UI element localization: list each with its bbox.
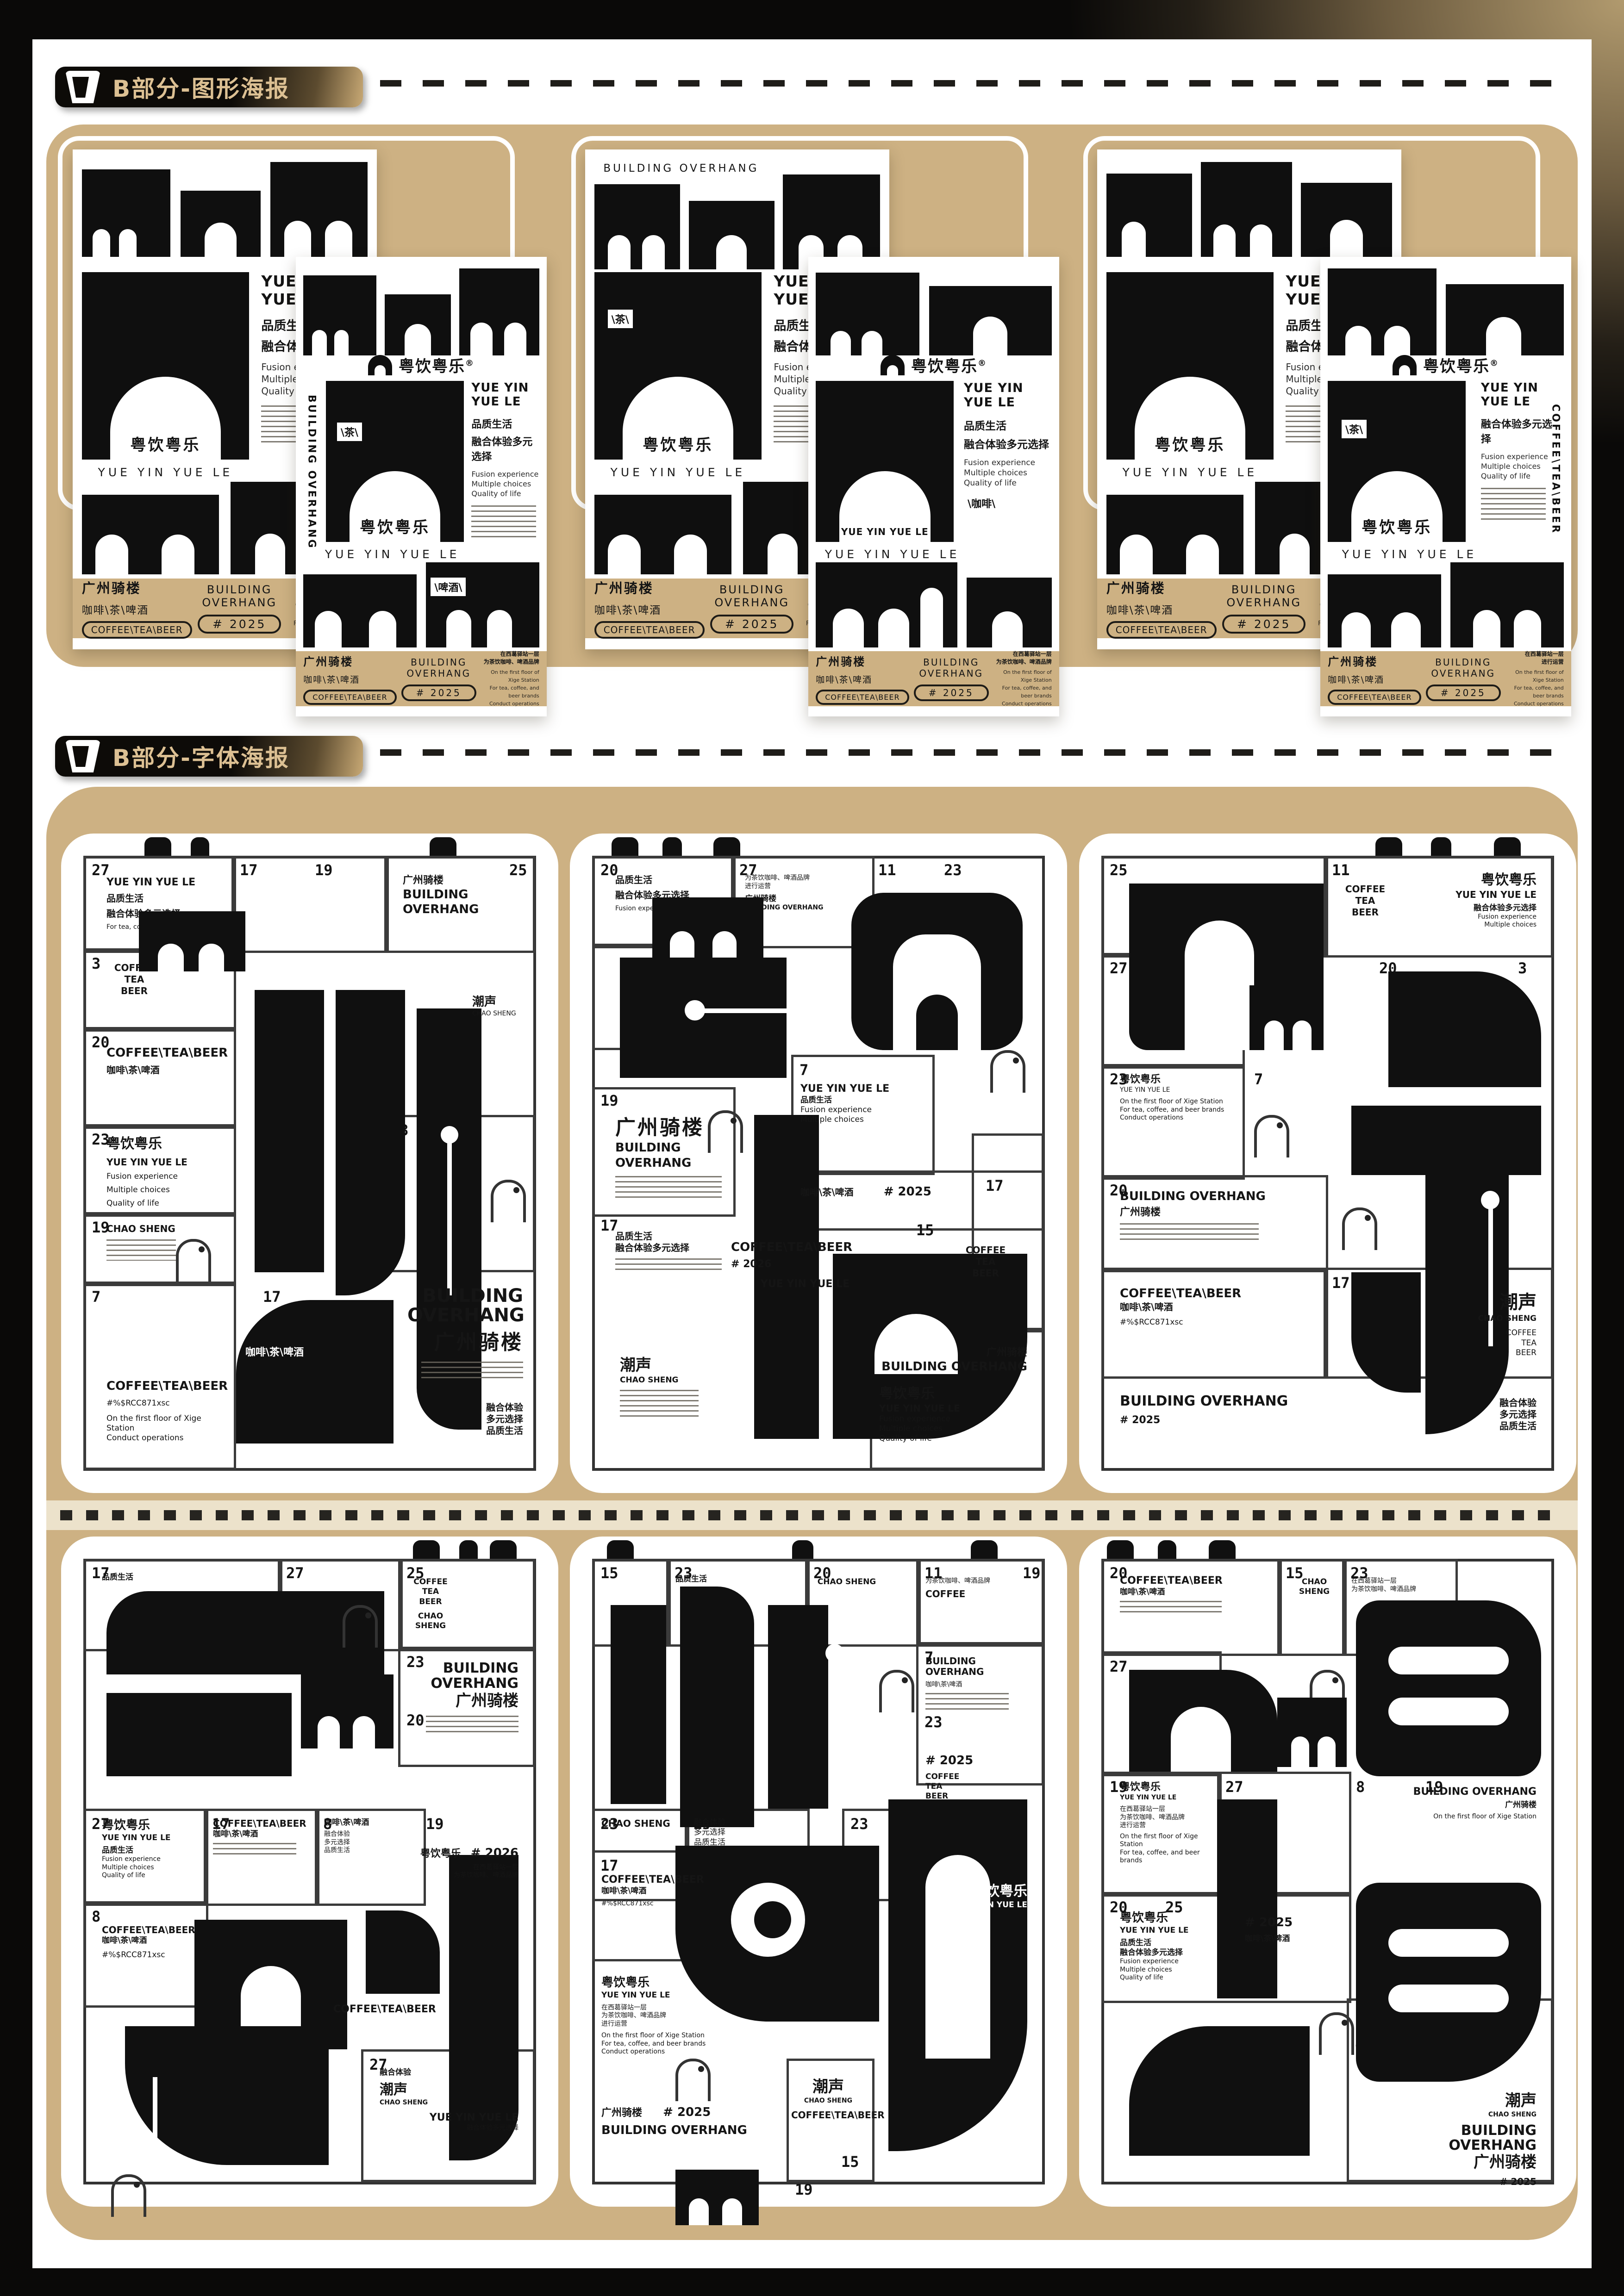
door-icon (879, 1670, 914, 1712)
building-large: 粤饮粤乐 (82, 272, 249, 460)
skyline (594, 174, 881, 269)
caption-en: YUE YIN YUE LE (597, 466, 758, 479)
arch-window (768, 534, 798, 574)
drinks-footer: COFFEE\TEA\BEER (1120, 2165, 1305, 2177)
grid-number: 27 (1110, 959, 1128, 977)
pin-dot (145, 2156, 163, 2173)
graphic-posters-panel: 粤饮粤乐 YUE YIN YUE LE 品质生活 融合体验多元选择 Fusion… (46, 124, 1578, 667)
roof-bump (662, 837, 682, 857)
door-dot (1013, 1058, 1019, 1064)
page-background: B部分-图形海报 粤饮粤乐 YUE YIN YUE LE (32, 39, 1592, 2268)
door-icon (343, 1605, 378, 1648)
arch-window (284, 221, 312, 257)
mini-building (675, 2170, 759, 2225)
coffee-stack: COFFEETEABEER (1333, 884, 1398, 918)
note-top: 为茶饮咖啡、啤酒品牌 COFFEE (925, 1577, 1032, 1600)
mini-building (652, 897, 763, 958)
arch-window (1291, 1736, 1309, 1767)
arch-window (504, 323, 527, 356)
typography-poster-3[interactable]: 25 11 27 25 20 3 23 7 20 17 (1079, 834, 1576, 1493)
arch-window (119, 229, 137, 257)
arch-window (255, 534, 285, 574)
building-block: BUILDING OVERHANG 广州骑楼 (407, 1661, 518, 1734)
arch-window (1384, 326, 1410, 355)
door-dot (1342, 2020, 1348, 2026)
building-bottom: 潮声 CHAO SHENG BUILDING OVERHANG 广州骑楼 # 2… (1402, 2091, 1537, 2188)
arch-window (205, 223, 237, 257)
glyph-stroke (236, 1300, 394, 1444)
arch-window (1213, 224, 1235, 257)
typography-poster-6[interactable]: 20 15 23 27 3 19 27 8 19 20 25 11 27 19 (1079, 1537, 1576, 2207)
footer-note: 在西葛驿站一层进行运营 On the first floor of Xige S… (1505, 650, 1564, 708)
brand-bottom: 粤饮粤乐 YUE YIN YUE LE 在西葛驿站一层为茶饮咖啡、啤酒品牌进行运… (601, 1975, 722, 2056)
building-overhang-big: BUILDING OVERHANG 广州骑楼 (407, 1286, 523, 1380)
chao-top: CHAO SHENG (1287, 1577, 1342, 1597)
year-mid: # 2025 COFFEETEABEER (925, 1753, 1032, 1801)
roof-bump (459, 1540, 478, 1560)
brand-block: 粤饮粤乐 YUE YIN YUE LE Fusion experienceMul… (106, 1135, 227, 1212)
skyline (1328, 562, 1564, 647)
brand-block: YUE YIN YUE LE 品质生活 Fusion experienceMul… (800, 1083, 921, 1125)
door-dot (365, 1612, 371, 1618)
glyph-stroke (1351, 1106, 1541, 1175)
grid-number: 7 (92, 1288, 100, 1306)
skyline (816, 268, 1052, 356)
tagline-zh1: 品质生活 (471, 416, 542, 431)
poster-grid: 27 17 19 25 3 20 23 19 7 17 23 (83, 856, 536, 1471)
roof-bump (430, 837, 456, 857)
brand-logo-row: 粤饮粤乐® (296, 354, 547, 376)
glyph-counter (1388, 1929, 1509, 1957)
door-dot (199, 1246, 205, 1252)
arch-doorway: 粤饮粤乐 (350, 471, 441, 542)
building-block: BUILDING OVERHANG 广州骑楼 (1120, 1189, 1314, 1240)
grid-number: 11 (878, 861, 896, 879)
section2-header-pill: B部分-字体海报 (55, 736, 363, 777)
tagline-zh2: 融合体验多元选择 (1481, 416, 1561, 446)
footer-left: 广州骑楼 咖啡\茶\啤酒 COFFEE\TEA\BEER (303, 653, 396, 705)
pin-stem (703, 1008, 805, 1013)
grid-number: 7 (800, 1061, 808, 1079)
brand-block: 粤饮粤乐 YUE YIN YUE LE 融合体验多元选择 Fusion expe… (1416, 871, 1537, 929)
place-block: 广州骑楼 BUILDING OVERHANG 粤饮粤乐 YUE YIN YUE … (879, 1346, 1027, 1444)
glyph-stroke (1129, 2026, 1310, 2156)
registered-mark: ® (1490, 358, 1499, 368)
roof-bump (1375, 837, 1402, 857)
arch-window (992, 611, 1023, 647)
footer-middle: BUILDING OVERHANG # 2025 (1426, 657, 1501, 701)
footer-note: 在西葛驿站一层为茶饮咖啡、啤酒品牌 On the first floor of … (481, 650, 539, 708)
fusion-block: 融合体验多元选择品质生活 (694, 1818, 796, 1848)
year-mid: # 2025 咖啡\茶\啤酒 (1245, 1915, 1337, 1944)
arch-doorway: 粤饮粤乐 (1135, 377, 1245, 459)
poster-text-column: YUE YIN YUE LE 品质生活 融合体验多元选择 Fusion expe… (471, 381, 542, 537)
brand-right: 粤饮粤乐 YUE YIN YUE LE (916, 1883, 1027, 1910)
caption-en: YUE YIN YUE LE (321, 548, 464, 561)
arch-logo-icon (368, 355, 392, 375)
door-dot (134, 2182, 140, 2188)
footer-middle: BUILDING OVERHANG # 2025 (710, 583, 794, 634)
year-pill: # 2025 (198, 615, 281, 634)
building-right: BUILDING OVERHANG 广州骑楼 On the first floo… (1402, 1786, 1537, 1821)
graphic-poster-6[interactable]: 粤饮粤乐® COFFEE\TEA\BEER \茶\ 粤饮粤乐 YUE YIN Y… (1320, 257, 1571, 716)
arch-window (353, 1716, 375, 1748)
arch-doorway: 粤饮粤乐 (110, 377, 220, 459)
poster-grid: 20 15 23 27 3 19 27 8 19 20 25 11 27 19 (1101, 1559, 1554, 2184)
grid-number: 17 (263, 1288, 281, 1306)
drinks-block: COFFEE\TEA\BEER 咖啡\茶\啤酒 #%$RCC871xsc (601, 1873, 796, 1908)
grid-number: 25 (1110, 861, 1128, 879)
roof-bump (413, 1540, 440, 1560)
skyline (1106, 162, 1393, 257)
arch-window (1293, 1020, 1312, 1050)
brand-name-zh: 粤饮粤乐 (350, 515, 441, 537)
building-large: 粤饮粤乐 (1106, 272, 1274, 460)
brand-name-zh: 粤饮粤乐 (911, 357, 978, 376)
glyph-counter (1388, 1985, 1509, 2012)
arch-window (405, 324, 431, 356)
micro-text-lines (615, 1258, 722, 1272)
micro-text-lines (106, 1239, 176, 1261)
building-silhouette (426, 562, 539, 647)
brand-name-zh: 粤饮粤乐 (1423, 357, 1490, 376)
door-dot (698, 2066, 704, 2072)
arch-window (1120, 535, 1153, 574)
building-silhouette (270, 162, 368, 257)
arch-doorway: YUE YIN YUE LE (839, 471, 931, 542)
roof-bump (1431, 837, 1451, 857)
drinks-block: COFFEE\TEA\BEER 咖啡\茶\啤酒 #%$RCC871xsc (1120, 1286, 1305, 1327)
poster-footer: 广州骑楼 咖啡\茶\啤酒 COFFEE\TEA\BEER BUILDING OV… (1320, 651, 1571, 706)
drinks-bottom: 咖啡\茶\啤酒 (245, 1346, 375, 1359)
tagline-en: Fusion experienceMultiple choicesQuality… (964, 458, 1049, 488)
arch-window (487, 610, 512, 647)
caption-en: YUE YIN YUE LE (1340, 548, 1478, 561)
building-large: YUE YIN YUE LE (816, 381, 954, 542)
note-top: 在西葛驿站一层为茶饮咖啡、啤酒品牌 (1351, 1577, 1453, 1593)
section1-dashed-rule (380, 80, 1565, 87)
building-silhouette (82, 169, 170, 257)
building-silhouette (1106, 174, 1192, 257)
building-silhouette (1106, 495, 1243, 574)
mini-building (1249, 985, 1324, 1050)
building-silhouette (1446, 284, 1564, 356)
brand-name-zh: 粤饮粤乐 (110, 432, 220, 455)
section2-header: B部分-字体海报 (55, 736, 363, 777)
building-silhouette (1328, 574, 1441, 647)
coffee-stack: COFFEETEABEER CHAO SHENG (403, 1577, 458, 1631)
drinks-block: COFFEE\TEA\BEER # 2026 YUE YIN YUE LE (731, 1240, 879, 1291)
building-silhouette (82, 495, 219, 574)
brand-name-en: YUE YIN YUE LE (839, 526, 931, 537)
building-silhouette (303, 574, 417, 647)
place-block: 广州骑楼 BUILDING OVERHANG (403, 874, 523, 917)
brand-block: 粤饮粤乐 YUE YIN YUE LE On the first floor o… (1120, 1073, 1231, 1122)
brand-name-zh: 粤饮粤乐 (623, 432, 733, 455)
grid-number: 27 (1225, 1778, 1243, 1796)
arch-window (315, 611, 342, 647)
mini-building (139, 911, 245, 971)
glyph-stroke (1388, 971, 1541, 1087)
roof-bump (1209, 1540, 1236, 1560)
building-silhouette (1328, 268, 1436, 356)
brand-cup-icon (65, 740, 100, 772)
brand-name-zh: 粤饮粤乐 (1135, 432, 1245, 455)
building-mid: BUILDING OVERHANG 咖啡\茶\啤酒 (925, 1656, 1032, 1711)
beer-tag: \啤酒\ (431, 578, 466, 596)
poster-grid: 25 11 27 25 20 3 23 7 20 17 (1101, 856, 1554, 1471)
typography-poster-4[interactable]: 17 27 25 23 20 27 17 8 19 8 27 (61, 1537, 558, 2207)
arch-window (1345, 326, 1371, 355)
glyph-stroke (1356, 1883, 1541, 2082)
brand-block: 品质生活 (102, 1573, 213, 1582)
chao-top: CHAO SHENG (814, 1577, 879, 1587)
grid-number: 15 (600, 1564, 618, 1582)
graphic-poster-4[interactable]: 粤饮粤乐® YUE YIN YUE LE YUE YIN YUE LE 品质生活… (808, 257, 1059, 716)
grid-number: 17 (240, 861, 258, 879)
building-silhouette (385, 294, 451, 355)
arch-window (833, 609, 864, 648)
building-large: \茶\ 粤饮粤乐 (326, 381, 464, 542)
chao-bottom: 融合体验 潮声 CHAO SHENG YUE YIN YUE LE 融合体验多元… (380, 2068, 518, 2132)
fusion-block: 融合体验多元选择品质生活 (407, 1402, 523, 1437)
poster-grid: 15 23 20 11 19 7 23 23 19 23 3 17 15 19 (592, 1559, 1045, 2184)
caption-en: YUE YIN YUE LE (824, 548, 962, 561)
brand-logo-row: 粤饮粤乐® (808, 354, 1059, 376)
arch-window (1280, 534, 1310, 574)
footer-middle: BUILDING OVERHANG # 2025 (914, 657, 989, 701)
arch-doorway: 粤饮粤乐 (623, 377, 733, 459)
brand-block: 粤饮粤乐 YUE YIN YUE LE 品质生活 Fusion experien… (102, 1818, 213, 1880)
drinks-block: COFFEE\TEA\BEER 咖啡\茶\啤酒 (213, 1818, 315, 1857)
fusion-block: 融合体验多元选择品质生活 (1388, 1397, 1537, 1432)
grid-number: 8 (92, 1908, 100, 1925)
registered-mark: ® (465, 358, 475, 368)
micro-text-lines (1120, 1601, 1222, 1615)
arch-logo-icon (881, 355, 905, 375)
drinks-zh: 咖啡\茶\啤酒 (82, 601, 192, 617)
chao-block: 潮声 CHAO SHENG COFFEETEABEER (1425, 1291, 1537, 1358)
poster-text-column: YUE YIN YUE LE 品质生活 融合体验多元选择 Fusion expe… (964, 381, 1049, 512)
portfolio-board: B部分-图形海报 粤饮粤乐 YUE YIN YUE LE (0, 0, 1624, 2296)
poster-footer: 广州骑楼 咖啡\茶\啤酒 COFFEE\TEA\BEER BUILDING OV… (296, 651, 547, 706)
door-icon (491, 1180, 526, 1222)
glyph-stroke (1356, 1600, 1541, 1776)
door-icon (990, 1050, 1025, 1093)
micro-text-lines (213, 1843, 296, 1857)
drinks-block: COFFEE\TEA\BEER 咖啡\茶\啤酒 (106, 1045, 227, 1076)
arch-window (1342, 612, 1371, 647)
arch-window (162, 535, 194, 574)
arch-window (158, 944, 183, 971)
drinks-bottom: COFFEE\TEA\BEER (333, 2003, 472, 2016)
tea-tag: \茶\ (608, 310, 633, 328)
arch-window (1391, 612, 1421, 647)
brand-name-en: YUE YIN YUE LE (1481, 381, 1561, 409)
glyph-counter (1185, 921, 1254, 1050)
arch-window (1186, 535, 1219, 574)
roof-bump (792, 1540, 813, 1560)
brand-cup-icon (65, 71, 100, 103)
micro-text-lines (620, 1390, 699, 1418)
arch-window (674, 535, 707, 574)
arch-window (712, 931, 737, 958)
micro-text-lines (421, 1362, 523, 1380)
arch-window (1250, 224, 1272, 257)
drinks-hashtag: COFFEE\TEA\BEER 咖啡\茶\啤酒 #%$RCC871xsc (102, 1924, 204, 1960)
building-silhouette (1201, 162, 1293, 257)
pin-dot (685, 1000, 705, 1020)
mini-building (301, 1674, 394, 1748)
graphic-poster-2[interactable]: 粤饮粤乐® BUILDING OVERHANG \茶\ 粤饮粤乐 YUE YIN… (296, 257, 547, 716)
footer-left: 广州骑楼 咖啡\茶\啤酒 COFFEE\TEA\BEER (594, 578, 705, 639)
roof-bump (607, 1540, 634, 1560)
building-silhouette (1301, 183, 1393, 257)
grid-number: 17 (1332, 1274, 1350, 1292)
grid-number: 11 (1332, 861, 1350, 879)
tagline-zh2: 融合体验多元选择 (471, 434, 542, 463)
building-silhouette (816, 562, 957, 647)
section1-header-pill: B部分-图形海报 (55, 67, 363, 107)
place-zh: 广州骑楼 (82, 578, 192, 597)
roof-bump (713, 837, 740, 857)
grid-number: 3 (1518, 959, 1527, 977)
grid-number: 8 (1356, 1778, 1365, 1796)
typography-poster-1[interactable]: 27 17 19 25 3 20 23 19 7 17 23 (61, 834, 558, 1493)
tagline-zh2: 融合体验多元选择 (964, 436, 1049, 451)
arch-window (369, 611, 396, 647)
arch-window (1473, 610, 1500, 647)
grid-number: 19 (315, 861, 333, 879)
glyph-stroke (611, 1605, 666, 1804)
door-icon (1342, 1207, 1377, 1250)
drinks-year: 咖啡\茶\啤酒 # 2025 (800, 1184, 986, 1200)
door-icon (708, 1110, 743, 1153)
glyph-stroke (916, 995, 958, 1050)
arch-window (920, 588, 943, 647)
micro-text-lines (1120, 1223, 1259, 1240)
section1-title: B部分-图形海报 (112, 70, 290, 104)
poster-grid: 17 27 25 23 20 27 17 8 19 8 27 (83, 1559, 536, 2184)
top-label: BUILDING OVERHANG (603, 162, 759, 174)
building-silhouette (783, 174, 880, 269)
fusion-block: 咖啡\茶\啤酒 融合体验多元选择品质生活 (324, 1818, 417, 1855)
micro-text-lines (925, 1693, 1009, 1711)
door-dot (902, 1677, 908, 1683)
micro-text-lines (615, 1176, 722, 1199)
grid-number: 17 (986, 1177, 1004, 1195)
door-icon (176, 1239, 211, 1282)
arch-window (325, 221, 352, 257)
grid-number: 23 (850, 1815, 868, 1833)
caption-en: YUE YIN YUE LE (85, 466, 246, 479)
grid-number: 15 (841, 2153, 859, 2171)
footer-left: 广州骑楼 咖啡\茶\啤酒 COFFEE\TEA\BEER (816, 653, 909, 705)
arch-window (334, 330, 349, 356)
skyline (303, 268, 539, 356)
brand-name-en: YUE YIN YUE LE (471, 381, 542, 409)
micro-text-lines (1481, 488, 1546, 520)
footer-left: 广州骑楼 咖啡\茶\啤酒 COFFEE\TEA\BEER (1106, 578, 1217, 639)
place-en: BUILDING OVERHANG (198, 583, 281, 609)
glyph-stroke (768, 1605, 828, 1809)
grid-number: 15 (916, 1221, 934, 1239)
building-silhouette (929, 286, 1052, 356)
building-silhouette (594, 184, 680, 270)
building-large: \茶\ 粤饮粤乐 (1328, 381, 1466, 542)
glyph-stroke (336, 990, 405, 1295)
grid-number: 23 (924, 1713, 943, 1731)
tea-tag: \茶\ (337, 423, 362, 441)
arch-window (862, 331, 882, 356)
arch-window (1486, 317, 1521, 356)
pin-stem (447, 1143, 452, 1295)
hashtag-block: COFFEE\TEA\BEER #%$RCC871xsc On the firs… (106, 1379, 227, 1444)
vertical-label: BUILDING OVERHANG (306, 395, 318, 549)
footer-note: 在西葛驿站一层为茶饮咖啡、啤酒品牌 On the first floor of … (993, 650, 1052, 708)
coffee-tag: \咖啡\ (964, 494, 999, 512)
grid-number: 27 (1110, 1658, 1128, 1675)
footer-middle: BUILDING OVERHANG # 2025 (401, 657, 476, 701)
chao-bottom: 潮声 CHAO SHENG COFFEE\TEA\BEER (791, 2077, 865, 2121)
grid-number: 23 (944, 861, 962, 879)
arch-window (670, 931, 694, 958)
roof-bump (1158, 1540, 1176, 1560)
door-dot (1365, 1215, 1371, 1221)
chao-block: 潮声 CHAO SHENG (620, 1356, 731, 1418)
drinks-top: COFFEE\TEA\BEER 咖啡\茶\啤酒 (1120, 1574, 1259, 1615)
poster-footer: 广州骑楼 咖啡\茶\啤酒 COFFEE\TEA\BEER BUILDING OV… (808, 651, 1059, 706)
building-silhouette (459, 268, 539, 356)
arch-window (973, 317, 1007, 356)
arch-window (608, 235, 630, 269)
glyph-counter (1388, 1698, 1509, 1725)
grid-number: 17 (600, 1857, 618, 1874)
arch-window (1514, 610, 1541, 647)
arch-window (470, 323, 493, 356)
door-icon (675, 2059, 711, 2101)
door-dot (513, 1187, 519, 1193)
section2-dashed-rule (380, 749, 1565, 756)
typography-poster-5[interactable]: 15 23 20 11 19 7 23 23 19 23 3 17 15 19 (570, 1537, 1067, 2207)
micro-text-lines (471, 505, 536, 538)
brand-block: 品质生活 (675, 1574, 805, 1584)
row-divider (46, 1500, 1578, 1530)
chao-block: CHAO SHENG (106, 1223, 181, 1261)
building-bottom: BUILDING OVERHANG # 2025 (1120, 1393, 1314, 1426)
chao-block: CHAO SHENG (601, 1818, 680, 1829)
glyph-stroke (255, 990, 324, 1272)
building-silhouette (1450, 562, 1564, 647)
footer-left: 广州骑楼 咖啡\茶\啤酒 COFFEE\TEA\BEER (1328, 653, 1421, 705)
building-silhouette (967, 578, 1051, 647)
arch-window (722, 2198, 742, 2225)
building-large: \茶\ 粤饮粤乐 (594, 272, 762, 460)
glyph-stroke (620, 958, 787, 1078)
roof-bump (612, 837, 638, 857)
arch-window (878, 609, 909, 648)
caption-en: YUE YIN YUE LE (1109, 466, 1270, 479)
typography-poster-2[interactable]: 20 27 11 23 19 17 7 23 15 17 20 (570, 834, 1067, 1493)
tagline-zh1: 品质生活 (964, 417, 1049, 433)
arch-window (93, 229, 110, 257)
door-icon (111, 2174, 146, 2217)
tagline-en: Fusion experienceMultiple choicesQuality… (471, 470, 542, 498)
building-silhouette (689, 201, 775, 269)
grid-number: 19 (426, 1815, 444, 1833)
skyline: \啤酒\ (303, 562, 539, 647)
arch-window (642, 235, 664, 269)
